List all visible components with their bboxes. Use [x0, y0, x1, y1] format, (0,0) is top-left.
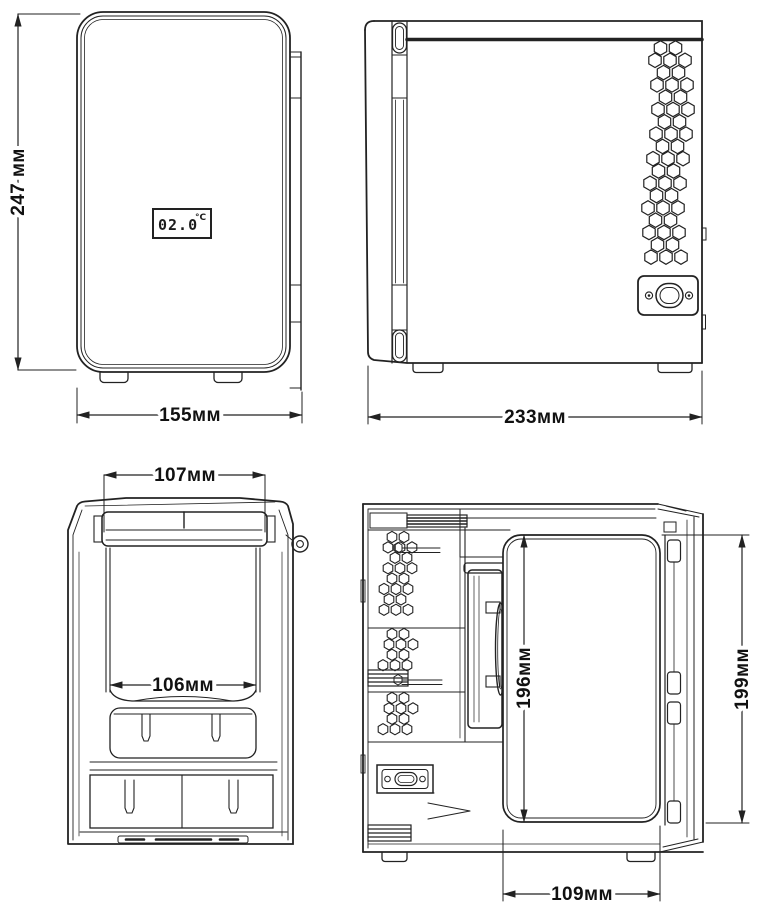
hex-vent-hole	[679, 53, 691, 67]
hex-vent-hole	[677, 152, 689, 166]
dimension-label: 199мм	[732, 648, 753, 710]
dimension-label: 155мм	[159, 405, 221, 426]
hex-vent-hole	[390, 724, 400, 735]
shell-outline	[68, 498, 293, 844]
foot	[214, 372, 242, 383]
hex-vent-hole	[379, 583, 389, 594]
hex-vent-hole	[396, 594, 406, 605]
hex-vent-hole	[642, 201, 654, 215]
inner-partitions	[368, 509, 510, 742]
hex-vent-hole	[665, 188, 677, 202]
hex-vent-hole	[387, 573, 397, 584]
hex-vent-hole	[673, 115, 685, 129]
hex-vent-hole	[658, 225, 670, 239]
hex-vent-hole	[665, 127, 677, 141]
hex-vent-hole	[643, 225, 655, 239]
hex-vent-hole	[674, 176, 686, 190]
hex-vent-hole	[399, 713, 409, 724]
front-section-drawing: 107мм 106мм	[30, 440, 360, 914]
hex-vent-hole	[660, 250, 672, 264]
hex-vent-hole	[667, 164, 679, 178]
hex-vent-hole	[384, 639, 394, 650]
hex-vent-hole	[674, 90, 686, 104]
hex-vent-hole	[667, 102, 679, 116]
hex-vent-hole	[378, 724, 388, 735]
hex-vent-hole	[387, 713, 397, 724]
door-section	[658, 504, 703, 852]
foot	[627, 852, 655, 862]
hex-vent-hole	[652, 164, 664, 178]
vent-honeycomb	[378, 692, 418, 734]
hex-vent-hole	[649, 213, 661, 227]
hex-vent-hole	[649, 53, 661, 67]
hex-vent-hole	[656, 139, 668, 153]
hex-vent-hole	[407, 563, 417, 574]
hex-vent-hole	[402, 660, 412, 671]
power-port	[638, 276, 698, 315]
hex-vent-hole	[407, 542, 417, 553]
hex-vent-hole	[654, 41, 666, 55]
hex-vent-hole	[673, 225, 685, 239]
top-duct	[368, 513, 656, 530]
hex-vent-hole	[644, 176, 656, 190]
hex-vent-hole	[659, 90, 671, 104]
hex-vent-hole	[672, 201, 684, 215]
foot	[413, 363, 443, 373]
hex-vent-hole	[399, 573, 409, 584]
foot	[658, 363, 692, 373]
hex-vent-hole	[647, 152, 659, 166]
dimension-height: 247 мм	[8, 14, 80, 370]
hex-vent-hole	[396, 639, 406, 650]
hex-vent-hole	[408, 639, 418, 650]
hex-vent-hole	[383, 563, 393, 574]
hex-vent-hole	[395, 563, 405, 574]
side-section-drawing: 196мм 199мм 109мм	[350, 440, 761, 914]
hex-vent-hole	[675, 250, 687, 264]
mount-bracket	[368, 670, 411, 841]
hinge-pin	[286, 535, 308, 552]
dimension-inner-width: 106мм	[110, 675, 256, 696]
hex-vent-hole	[383, 542, 393, 553]
hex-vent-hole	[390, 660, 400, 671]
hex-vent-hole	[387, 692, 397, 703]
lid-assembly	[94, 512, 275, 546]
hex-vent-hole	[384, 703, 394, 714]
front-view-drawing: 02.0 °C 247 мм 155мм	[0, 0, 330, 430]
dimension-label: 196мм	[514, 647, 535, 709]
foot	[100, 372, 128, 383]
dimension-outer-height: 199мм	[662, 535, 753, 823]
drip-tray	[110, 708, 256, 758]
power-port	[377, 765, 433, 793]
hex-vent-hole	[664, 53, 676, 67]
display-unit: °C	[195, 213, 207, 223]
vent-honeycomb	[642, 41, 694, 264]
hex-vent-hole	[666, 238, 678, 252]
hex-vent-hole	[651, 78, 663, 92]
hex-vent-hole	[680, 127, 692, 141]
hex-vent-hole	[387, 628, 397, 639]
hex-vent-hole	[671, 139, 683, 153]
foot	[382, 852, 407, 862]
vent-honeycomb	[379, 531, 417, 615]
door-hinge-strip	[290, 52, 301, 390]
hex-vent-hole	[408, 703, 418, 714]
hex-vent-hole	[384, 594, 394, 605]
hex-vent-hole	[657, 201, 669, 215]
hex-vent-hole	[681, 78, 693, 92]
hex-vent-hole	[387, 531, 397, 542]
hex-vent-hole	[379, 604, 389, 615]
hex-vent-hole	[399, 531, 409, 542]
hex-vent-hole	[669, 41, 681, 55]
fridge-door	[77, 12, 290, 372]
hex-vent-hole	[403, 583, 413, 594]
hex-vent-hole	[387, 649, 397, 660]
hex-vent-hole	[650, 127, 662, 141]
dimension-label: 106мм	[152, 675, 214, 696]
dimension-label: 247 мм	[8, 148, 29, 216]
dimension-label: 107мм	[154, 465, 216, 486]
hex-vent-hole	[650, 188, 662, 202]
hex-vent-hole	[378, 660, 388, 671]
hex-vent-hole	[399, 628, 409, 639]
vent-honeycomb	[378, 628, 418, 670]
hex-vent-hole	[402, 724, 412, 735]
dimension-label: 109мм	[551, 884, 613, 905]
hex-vent-hole	[391, 604, 401, 615]
display-value: 02.0	[158, 216, 198, 234]
hex-vent-hole	[664, 213, 676, 227]
base-compartment	[80, 762, 287, 843]
hex-vent-hole	[662, 152, 674, 166]
dimension-bottom-width: 109мм	[503, 828, 660, 905]
drain-funnel	[414, 793, 470, 819]
dimension-label: 233мм	[504, 407, 566, 428]
hex-vent-hole	[403, 604, 413, 615]
door-hinge	[392, 21, 407, 363]
hex-vent-hole	[645, 250, 657, 264]
hex-vent-hole	[666, 78, 678, 92]
hex-vent-hole	[672, 65, 684, 79]
hex-vent-hole	[391, 583, 401, 594]
hex-vent-hole	[682, 102, 694, 116]
hex-vent-hole	[390, 552, 400, 563]
hex-vent-hole	[399, 692, 409, 703]
hex-vent-hole	[402, 552, 412, 563]
dimension-width: 155мм	[77, 388, 302, 426]
hex-vent-hole	[399, 649, 409, 660]
hex-vent-hole	[652, 102, 664, 116]
hex-vent-hole	[657, 65, 669, 79]
hex-vent-hole	[651, 238, 663, 252]
heatsink	[464, 563, 506, 728]
hex-vent-hole	[658, 115, 670, 129]
hex-vent-hole	[396, 703, 406, 714]
dimension-blueprint: 02.0 °C 247 мм 155мм	[0, 0, 761, 914]
hex-vent-hole	[659, 176, 671, 190]
dimension-width: 233мм	[368, 366, 702, 428]
side-view-drawing: 233мм	[350, 0, 761, 430]
